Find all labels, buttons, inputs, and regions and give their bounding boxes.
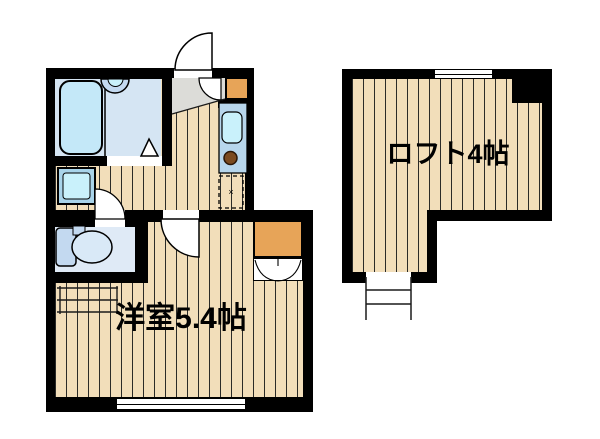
- toilet-bowl: [72, 231, 112, 263]
- room-door-swing: [161, 219, 199, 257]
- fridge-space-mark: ×: [228, 187, 233, 197]
- entry-door-swing: [175, 33, 212, 70]
- loft-ladder: [366, 277, 411, 320]
- main-room-label: 洋室5.4帖: [96, 293, 266, 337]
- closet-door-fold-left: [255, 260, 278, 281]
- floorplan-canvas: × 洋室5.4帖 ロフト4帖: [0, 0, 600, 439]
- kitchen-sink: [222, 112, 242, 143]
- toilet-door-swing: [95, 189, 125, 219]
- bathtub: [60, 81, 102, 154]
- closet-door-fold-right: [278, 260, 301, 281]
- washer-pan-inner: [63, 173, 90, 199]
- stove-burner: [224, 152, 237, 165]
- bathroom-door-triangle: [141, 139, 158, 156]
- fixtures-overlay: ×: [0, 0, 600, 439]
- loft-label: ロフト4帖: [372, 132, 524, 171]
